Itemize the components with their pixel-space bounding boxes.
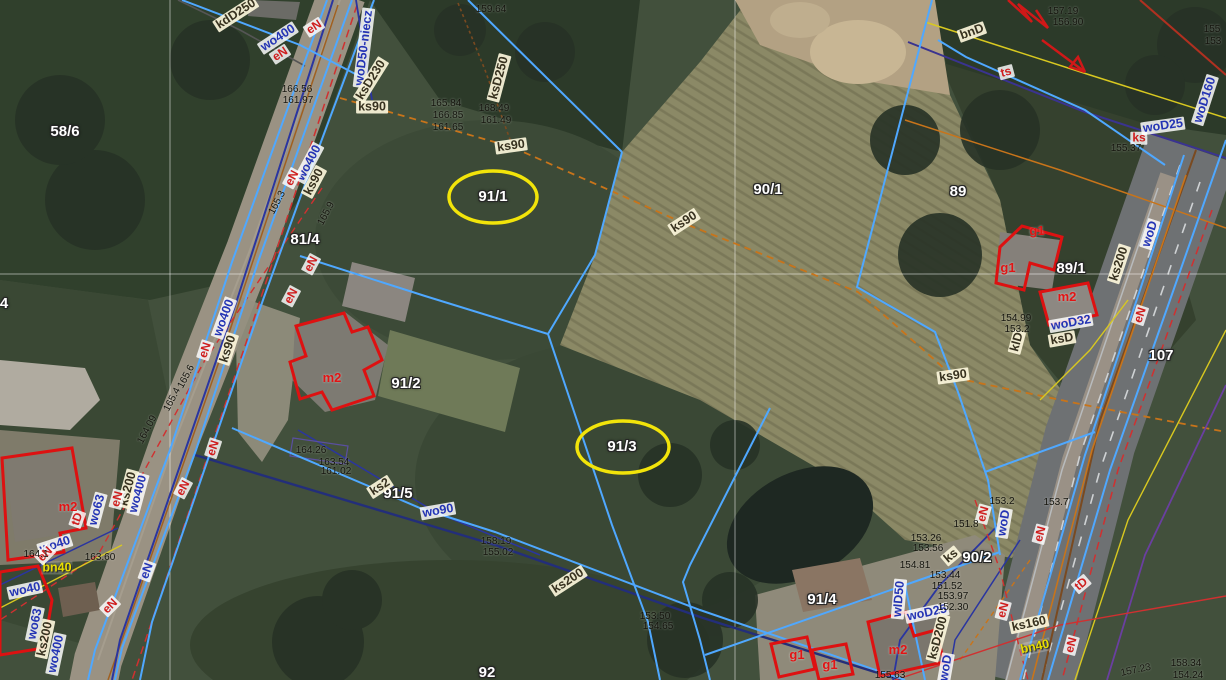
elevation-label: 161.65: [433, 123, 464, 134]
power-telecom-line-label: eN: [302, 16, 325, 37]
elevation-label: 153.2: [1004, 325, 1029, 336]
building-type-label: g1: [1029, 224, 1044, 238]
elevation-label: 165.9: [316, 200, 337, 227]
water-line-label: wo90: [419, 501, 456, 520]
parcel-number-label: 90/1: [753, 182, 782, 198]
building-type-label: m2: [59, 500, 78, 514]
elevation-label: 153.2: [989, 497, 1014, 508]
parcel-number-label: 91/1: [478, 189, 507, 205]
elevation-label: 163.60: [85, 553, 116, 564]
power-telecom-line-label: ts: [997, 64, 1014, 80]
parcel-number-label: 89: [950, 184, 967, 200]
sewer-line-label: bnD: [956, 21, 987, 43]
sewer-line-label: kdD250: [212, 0, 260, 33]
elevation-label: 153.56: [913, 544, 944, 555]
elevation-label: 158.19: [481, 537, 512, 548]
elevation-label: 154.99: [1001, 314, 1032, 325]
sewer-line-label: ks90: [936, 367, 969, 384]
power-telecom-line-label: eN: [1062, 634, 1079, 656]
building-type-label: g1: [789, 648, 804, 662]
sewer-line-label: ks90: [667, 208, 701, 236]
parcel-number-label: 91/4: [807, 592, 836, 608]
elevation-label: 157.19: [1048, 7, 1079, 18]
sewer-line-label: ks160: [1009, 614, 1050, 635]
water-line-label: eN: [137, 559, 156, 582]
building-type-label: m2: [323, 371, 342, 385]
parcel-number-label: 91/3: [607, 439, 636, 455]
parcel-number-label: 91/2: [391, 376, 420, 392]
building-type-label: m2: [1058, 290, 1077, 304]
sewer-line-label: ks200: [1107, 244, 1131, 285]
parcel-number-label: 107: [1148, 348, 1173, 364]
elevation-label: 153.44: [930, 571, 961, 582]
elevation-label: 153: [1205, 37, 1222, 48]
elevation-label: 153.7: [1043, 498, 1068, 509]
elevation-label: 166.85: [433, 111, 464, 122]
elevation-label: 161.49: [481, 116, 512, 127]
water-line-label: wo63: [86, 491, 108, 528]
elevation-label: 155.02: [483, 548, 514, 559]
elevation-label: 161.02: [321, 467, 352, 478]
elevation-label: 165.3: [267, 189, 288, 216]
elevation-label: 161.97: [283, 96, 314, 107]
building-type-label: m2: [889, 643, 908, 657]
map-canvas[interactable]: 58/6481/490/18989/110791/191/291/591/390…: [0, 0, 1226, 680]
sewer-line-label: ksD: [1048, 330, 1077, 348]
power-telecom-line-label: eN: [99, 595, 122, 618]
parcel-number-label: 89/1: [1056, 261, 1085, 277]
elevation-label: 152.30: [938, 603, 969, 614]
water-line-label: woD160: [1191, 74, 1219, 127]
elevation-label: 157.23: [1120, 663, 1152, 680]
elevation-label: 165.84: [431, 99, 462, 110]
building-type-label: g1: [822, 658, 837, 672]
map-labels-layer: 58/6481/490/18989/110791/191/291/591/390…: [0, 0, 1226, 680]
elevation-label: 166.56: [282, 85, 313, 96]
sewer-line-label: ks200: [548, 565, 588, 597]
water-line-label: wo40: [6, 580, 43, 600]
power-telecom-line-label: eN: [1031, 523, 1048, 545]
building-type-label: g1: [1000, 261, 1015, 275]
elevation-label: 158.34: [1171, 659, 1202, 670]
sewer-line-label: ks90: [356, 100, 388, 113]
elevation-label: 151.8: [953, 520, 978, 531]
parcel-number-label: 90/2: [962, 550, 991, 566]
water-line-label: woD: [1139, 218, 1161, 251]
parcel-number-label: 92: [479, 665, 496, 680]
elevation-label: 164.1: [23, 550, 48, 561]
power-telecom-line-label: eN: [196, 339, 214, 361]
sewer-line-label: ksD250: [486, 53, 511, 103]
elevation-label: 164.09: [136, 414, 160, 446]
power-telecom-line-label: eN: [204, 437, 222, 459]
power-telecom-line-label: eN: [281, 285, 301, 308]
power-telecom-line-label: eN: [173, 477, 193, 500]
bn-line-label: bn40: [1018, 637, 1051, 656]
power-telecom-line-label: eN: [301, 253, 321, 276]
elevation-label: 154.65: [643, 622, 674, 633]
elevation-label: 164.26: [296, 446, 327, 457]
elevation-label: 168.49: [479, 104, 510, 115]
bn-line-label: bn40: [41, 561, 72, 574]
elevation-label: 154.81: [900, 561, 931, 572]
power-telecom-line-label: tD: [1071, 574, 1092, 594]
elevation-label: 159.64: [476, 5, 507, 16]
parcel-number-label: 4: [0, 296, 8, 312]
elevation-label: 154.24: [1173, 671, 1204, 680]
elevation-label: 156.90: [1053, 18, 1084, 29]
parcel-number-label: 58/6: [50, 124, 79, 140]
sewer-line-label: ks90: [494, 137, 527, 154]
water-line-label: woD: [995, 507, 1013, 539]
elevation-label: 153.97: [938, 592, 969, 603]
elevation-label: 165.4: [162, 386, 183, 413]
parcel-number-label: 81/4: [290, 232, 319, 248]
power-telecom-line-label: eN: [994, 599, 1011, 621]
elevation-label: 155.37: [1111, 144, 1142, 155]
power-telecom-line-label: eN: [1131, 304, 1149, 326]
elevation-label: 155.63: [875, 671, 906, 680]
elevation-label: 165.6: [176, 363, 197, 390]
elevation-label: 155: [1204, 25, 1221, 36]
